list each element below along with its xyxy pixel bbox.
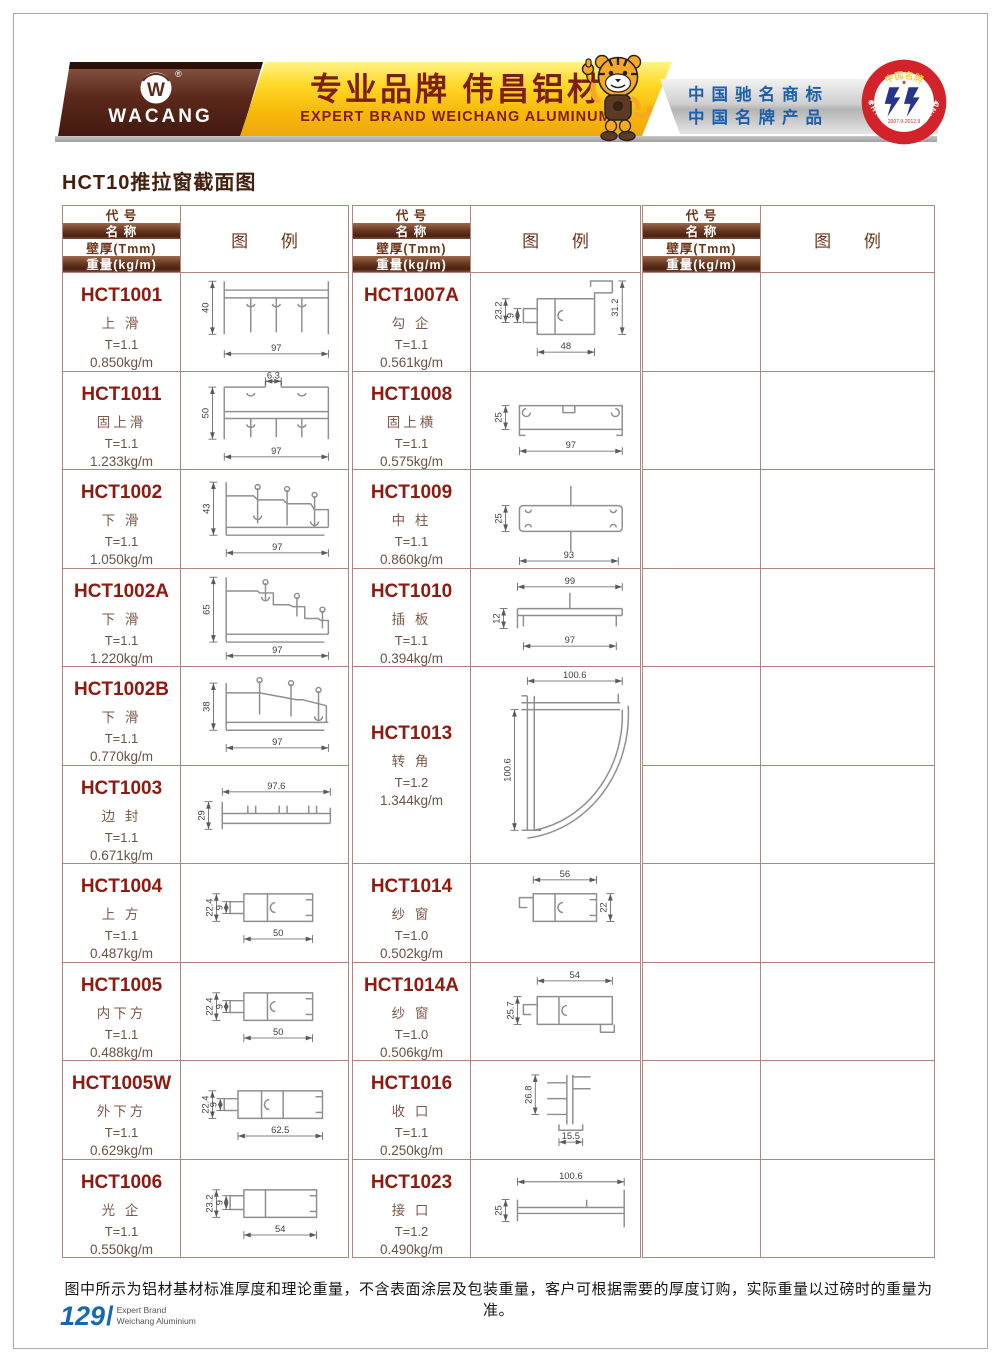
svg-text:★: ★ (901, 80, 907, 87)
svg-text:50: 50 (201, 408, 211, 418)
profile-code: HCT1016 (353, 1073, 470, 1095)
profile-weight: 0.502kg/m (353, 946, 470, 961)
svg-text:12: 12 (491, 613, 501, 623)
svg-text:54: 54 (569, 970, 579, 980)
profile-drawing-cell: 4397 (180, 469, 348, 568)
profile-drawing-cell: 97.629 (180, 765, 348, 864)
profile-drawing-cell: 22.4950 (180, 962, 348, 1061)
svg-text:9: 9 (208, 1102, 218, 1107)
profile-weight: 0.850kg/m (63, 355, 180, 370)
table-header-row: 代 号 (643, 206, 760, 223)
profile-name: 内下方 (63, 1002, 180, 1022)
profile-weight: 0.860kg/m (353, 552, 470, 567)
profile-name: 转 角 (353, 750, 470, 770)
profile-info-cell: HCT1011固上滑T=1.11.233kg/m (63, 371, 180, 470)
empty-drawing-cell (760, 1060, 934, 1159)
brand-logo-block: W ® WACANG (58, 62, 263, 136)
svg-text:25: 25 (493, 1205, 503, 1215)
table-header-row: 重量(kg/m) (63, 256, 180, 273)
profile-name: 上 方 (63, 903, 180, 923)
empty-drawing-cell (760, 371, 934, 470)
svg-text:6.3: 6.3 (267, 372, 280, 380)
svg-text:97: 97 (272, 542, 282, 552)
profile-info-cell: HCT1014纱 窗T=1.00.502kg/m (353, 863, 470, 962)
profile-table-right: 代 号名 称壁厚(Tmm)重量(kg/m)图 例 (642, 205, 935, 1258)
empty-drawing-cell (760, 765, 934, 864)
profile-drawing-cell: 6597 (180, 568, 348, 667)
profile-thickness: T=1.0 (353, 928, 470, 943)
profile-thickness: T=1.1 (63, 337, 180, 352)
profile-info-cell: HCT1023接 口T=1.20.490kg/m (353, 1159, 470, 1258)
profile-thickness: T=1.2 (353, 1224, 470, 1239)
profile-weight: 1.233kg/m (63, 454, 180, 469)
wacang-logo-icon: W (139, 71, 173, 105)
svg-text:2007.9-2012.9: 2007.9-2012.9 (888, 119, 921, 125)
banner-shadow (55, 136, 937, 142)
profile-code: HCT1004 (63, 876, 180, 898)
profile-thickness: T=1.1 (63, 830, 180, 845)
banner-title-en: EXPERT BRAND WEICHANG ALUMINUM (300, 109, 611, 125)
svg-text:22: 22 (598, 903, 608, 913)
registered-mark: ® (175, 69, 182, 79)
page-title: HCT10推拉窗截面图 (62, 166, 256, 195)
profile-drawing-cell: 26.815.5 (470, 1060, 640, 1159)
svg-text:9: 9 (214, 1200, 224, 1205)
profile-table-middle: 代 号名 称壁厚(Tmm)重量(kg/m)图 例HCT1007A勾 企T=1.1… (352, 205, 641, 1258)
profile-drawing-cell: 2597 (470, 371, 640, 470)
profile-thickness: T=1.1 (63, 534, 180, 549)
empty-info-cell (643, 568, 760, 667)
svg-text:48: 48 (560, 341, 570, 351)
svg-text:97: 97 (271, 343, 281, 353)
profile-weight: 0.561kg/m (353, 355, 470, 370)
table-header-row: 壁厚(Tmm) (353, 239, 470, 256)
profile-code: HCT1010 (353, 581, 470, 603)
table-header-row: 名 称 (353, 223, 470, 240)
profile-info-cell: HCT1001上 滑T=1.10.850kg/m (63, 272, 180, 371)
svg-text:100.6: 100.6 (502, 758, 512, 781)
profile-info-cell: HCT1002下 滑T=1.11.050kg/m (63, 469, 180, 568)
svg-text:97.6: 97.6 (267, 781, 285, 791)
empty-info-cell (643, 666, 760, 765)
profile-weight: 0.490kg/m (353, 1242, 470, 1257)
page-number-slash: / (106, 1303, 114, 1330)
profile-thickness: T=1.1 (63, 436, 180, 451)
profile-name: 外下方 (63, 1100, 180, 1120)
profile-name: 纱 窗 (353, 1002, 470, 1022)
profile-name: 纱 窗 (353, 903, 470, 923)
profile-weight: 0.488kg/m (63, 1045, 180, 1060)
svg-text:38: 38 (201, 702, 211, 712)
table-header-row: 壁厚(Tmm) (63, 239, 180, 256)
profile-info-cell: HCT1002B下 滑T=1.10.770kg/m (63, 666, 180, 765)
brand-line-1: Expert Brand (117, 1305, 196, 1316)
svg-text:93: 93 (563, 550, 573, 560)
profile-code: HCT1007A (353, 285, 470, 307)
page-number: 129 (60, 1303, 105, 1330)
empty-info-cell (643, 469, 760, 568)
profile-code: HCT1011 (63, 384, 180, 406)
table-header-column: 代 号名 称壁厚(Tmm)重量(kg/m) (353, 206, 470, 272)
page-number-block: 129 / Expert Brand Weichang Aluminium (60, 1303, 196, 1330)
profile-drawing-cell: 23.2954 (180, 1159, 348, 1258)
profile-name: 收 口 (353, 1100, 470, 1120)
profile-name: 下 滑 (63, 706, 180, 726)
profile-thickness: T=1.1 (353, 633, 470, 648)
profile-thickness: T=1.1 (63, 1224, 180, 1239)
svg-text:65: 65 (201, 604, 211, 614)
profile-weight: 0.250kg/m (353, 1143, 470, 1158)
profile-weight: 0.506kg/m (353, 1045, 470, 1060)
profile-info-cell: HCT1014A纱 窗T=1.00.506kg/m (353, 962, 470, 1061)
profile-thickness: T=1.1 (63, 731, 180, 746)
profile-thickness: T=1.1 (63, 1027, 180, 1042)
china-top-brand-seal: 中国名牌 CHINA TOP BRAND ★ ★ ★ 2007.9-2012.9 (858, 56, 950, 148)
profile-weight: 0.575kg/m (353, 454, 470, 469)
profile-code: HCT1003 (63, 778, 180, 800)
profile-thickness: T=1.1 (63, 633, 180, 648)
empty-info-cell (643, 1060, 760, 1159)
profile-weight: 0.671kg/m (63, 848, 180, 863)
profile-thickness: T=1.1 (63, 1125, 180, 1140)
profile-name: 中 柱 (353, 509, 470, 529)
profile-thickness: T=1.1 (353, 1125, 470, 1140)
table-header-column: 代 号名 称壁厚(Tmm)重量(kg/m) (63, 206, 180, 272)
empty-drawing-cell (760, 666, 934, 765)
svg-text:9: 9 (214, 905, 224, 910)
banner-title-cn: 专业品牌 伟昌铝材 (310, 73, 602, 105)
profile-thickness: T=1.1 (353, 436, 470, 451)
svg-text:23.2: 23.2 (493, 302, 503, 320)
profile-code: HCT1002B (63, 679, 180, 701)
profile-thickness: T=1.1 (353, 337, 470, 352)
empty-drawing-cell (760, 1159, 934, 1258)
profile-name: 光 企 (63, 1199, 180, 1219)
profile-table-left: 代 号名 称壁厚(Tmm)重量(kg/m)图 例HCT1001上 滑T=1.10… (62, 205, 349, 1258)
svg-text:9: 9 (505, 313, 515, 318)
profile-code: HCT1002 (63, 482, 180, 504)
brand-line-2: Weichang Aluminium (117, 1316, 196, 1327)
profile-name: 插 板 (353, 608, 470, 628)
profile-info-cell: HCT1006光 企T=1.10.550kg/m (63, 1159, 180, 1258)
svg-text:54: 54 (275, 1224, 285, 1234)
profile-code: HCT1001 (63, 285, 180, 307)
svg-text:31.2: 31.2 (610, 299, 620, 317)
empty-drawing-cell (760, 962, 934, 1061)
empty-info-cell (643, 863, 760, 962)
profile-thickness: T=1.2 (353, 775, 470, 790)
profile-info-cell: HCT1007A勾 企T=1.10.561kg/m (353, 272, 470, 371)
empty-drawing-cell (760, 568, 934, 667)
profile-info-cell: HCT1002A下 滑T=1.11.220kg/m (63, 568, 180, 667)
profile-info-cell: HCT1005W外下方T=1.10.629kg/m (63, 1060, 180, 1159)
profile-weight: 0.629kg/m (63, 1143, 180, 1158)
profile-weight: 0.550kg/m (63, 1242, 180, 1257)
table-header-row: 名 称 (63, 223, 180, 240)
profile-drawing-cell: 22.4962.5 (180, 1060, 348, 1159)
logo-text: WACANG (108, 106, 213, 128)
svg-text:40: 40 (201, 303, 211, 313)
catalog-page: W ® WACANG 专业品牌 伟昌铝材 EXPERT BRAND WEICHA… (0, 0, 1000, 1366)
profile-weight: 0.770kg/m (63, 749, 180, 764)
empty-info-cell (643, 962, 760, 1061)
table-header-row: 重量(kg/m) (353, 256, 470, 273)
tiger-mascot-icon (578, 50, 660, 144)
svg-text:62.5: 62.5 (271, 1125, 289, 1135)
profile-weight: 1.344kg/m (353, 793, 470, 808)
profile-name: 固上滑 (63, 411, 180, 431)
profile-info-cell: HCT1008固上横T=1.10.575kg/m (353, 371, 470, 470)
profile-thickness: T=1.1 (63, 928, 180, 943)
svg-text:25: 25 (493, 412, 503, 422)
profile-info-cell: HCT1013转 角T=1.21.344kg/m (353, 666, 470, 863)
profile-info-cell: HCT1010插 板T=1.10.394kg/m (353, 568, 470, 667)
profile-info-cell: HCT1004上 方T=1.10.487kg/m (63, 863, 180, 962)
legend-header: 图 例 (760, 206, 934, 272)
svg-text:97: 97 (564, 635, 574, 645)
profile-code: HCT1005W (63, 1073, 180, 1095)
table-header-row: 名 称 (643, 223, 760, 240)
empty-info-cell (643, 765, 760, 864)
empty-drawing-cell (760, 469, 934, 568)
svg-text:25.7: 25.7 (505, 1001, 515, 1019)
svg-text:100.6: 100.6 (563, 670, 586, 680)
profile-weight: 0.487kg/m (63, 946, 180, 961)
svg-text:26.8: 26.8 (523, 1086, 533, 1104)
svg-text:97: 97 (272, 737, 282, 747)
profile-drawing-cell: 6.35097 (180, 371, 348, 470)
svg-text:9: 9 (214, 1004, 224, 1009)
profile-info-cell: HCT1016收 口T=1.10.250kg/m (353, 1060, 470, 1159)
svg-text:97: 97 (565, 440, 575, 450)
empty-info-cell (643, 371, 760, 470)
svg-text:29: 29 (197, 810, 207, 820)
svg-text:★: ★ (868, 98, 875, 107)
table-header-row: 代 号 (353, 206, 470, 223)
profile-info-cell: HCT1009中 柱T=1.10.860kg/m (353, 469, 470, 568)
profile-name: 勾 企 (353, 312, 470, 332)
profile-weight: 1.220kg/m (63, 651, 180, 666)
profile-name: 下 滑 (63, 509, 180, 529)
profile-code: HCT1009 (353, 482, 470, 504)
profile-drawing-cell: 4097 (180, 272, 348, 371)
profile-info-cell: HCT1003边 封T=1.10.671kg/m (63, 765, 180, 864)
profile-code: HCT1005 (63, 975, 180, 997)
profile-drawing-cell: 5425.7 (470, 962, 640, 1061)
svg-text:25: 25 (493, 514, 503, 524)
table-header-column: 代 号名 称壁厚(Tmm)重量(kg/m) (643, 206, 760, 272)
profile-code: HCT1008 (353, 384, 470, 406)
profile-code: HCT1006 (63, 1172, 180, 1194)
profile-drawing-cell: 22.4950 (180, 863, 348, 962)
empty-drawing-cell (760, 272, 934, 371)
profile-weight: 0.394kg/m (353, 651, 470, 666)
profile-code: HCT1014 (353, 876, 470, 898)
legend-header: 图 例 (180, 206, 348, 272)
svg-text:23.2: 23.2 (204, 1194, 214, 1212)
profile-drawing-cell: 991297 (470, 568, 640, 667)
svg-text:22.4: 22.4 (204, 899, 214, 917)
empty-drawing-cell (760, 863, 934, 962)
svg-text:97: 97 (271, 446, 281, 456)
svg-text:22.4: 22.4 (204, 997, 214, 1015)
profile-drawing-cell: 100.6100.6 (470, 666, 640, 863)
empty-info-cell (643, 1159, 760, 1258)
profile-name: 边 封 (63, 805, 180, 825)
svg-text:100.6: 100.6 (559, 1171, 582, 1181)
profile-drawing-cell: 23.2931.248 (470, 272, 640, 371)
profile-thickness: T=1.1 (353, 534, 470, 549)
profile-code: HCT1014A (353, 975, 470, 997)
svg-text:★: ★ (933, 98, 940, 107)
profile-weight: 1.050kg/m (63, 552, 180, 567)
svg-text:50: 50 (273, 928, 283, 938)
table-header-row: 壁厚(Tmm) (643, 239, 760, 256)
table-header-row: 重量(kg/m) (643, 256, 760, 273)
svg-text:50: 50 (273, 1027, 283, 1037)
profile-info-cell: HCT1005内下方T=1.10.488kg/m (63, 962, 180, 1061)
svg-text:99: 99 (564, 576, 574, 586)
profile-drawing-cell: 100.625 (470, 1159, 640, 1258)
svg-text:97: 97 (272, 645, 282, 655)
svg-text:43: 43 (201, 504, 211, 514)
svg-text:15.5: 15.5 (561, 1131, 579, 1141)
table-header-row: 代 号 (63, 206, 180, 223)
profile-name: 接 口 (353, 1199, 470, 1219)
profile-drawing-cell: 3897 (180, 666, 348, 765)
svg-text:56: 56 (559, 869, 569, 879)
svg-text:W: W (147, 80, 165, 101)
empty-info-cell (643, 272, 760, 371)
profile-thickness: T=1.0 (353, 1027, 470, 1042)
profile-code: HCT1002A (63, 581, 180, 603)
profile-code: HCT1013 (353, 723, 470, 745)
profile-name: 上 滑 (63, 312, 180, 332)
profile-name: 下 滑 (63, 608, 180, 628)
legend-header: 图 例 (470, 206, 640, 272)
profile-name: 固上横 (353, 411, 470, 431)
profile-drawing-cell: 2593 (470, 469, 640, 568)
profile-code: HCT1023 (353, 1172, 470, 1194)
profile-drawing-cell: 5622 (470, 863, 640, 962)
